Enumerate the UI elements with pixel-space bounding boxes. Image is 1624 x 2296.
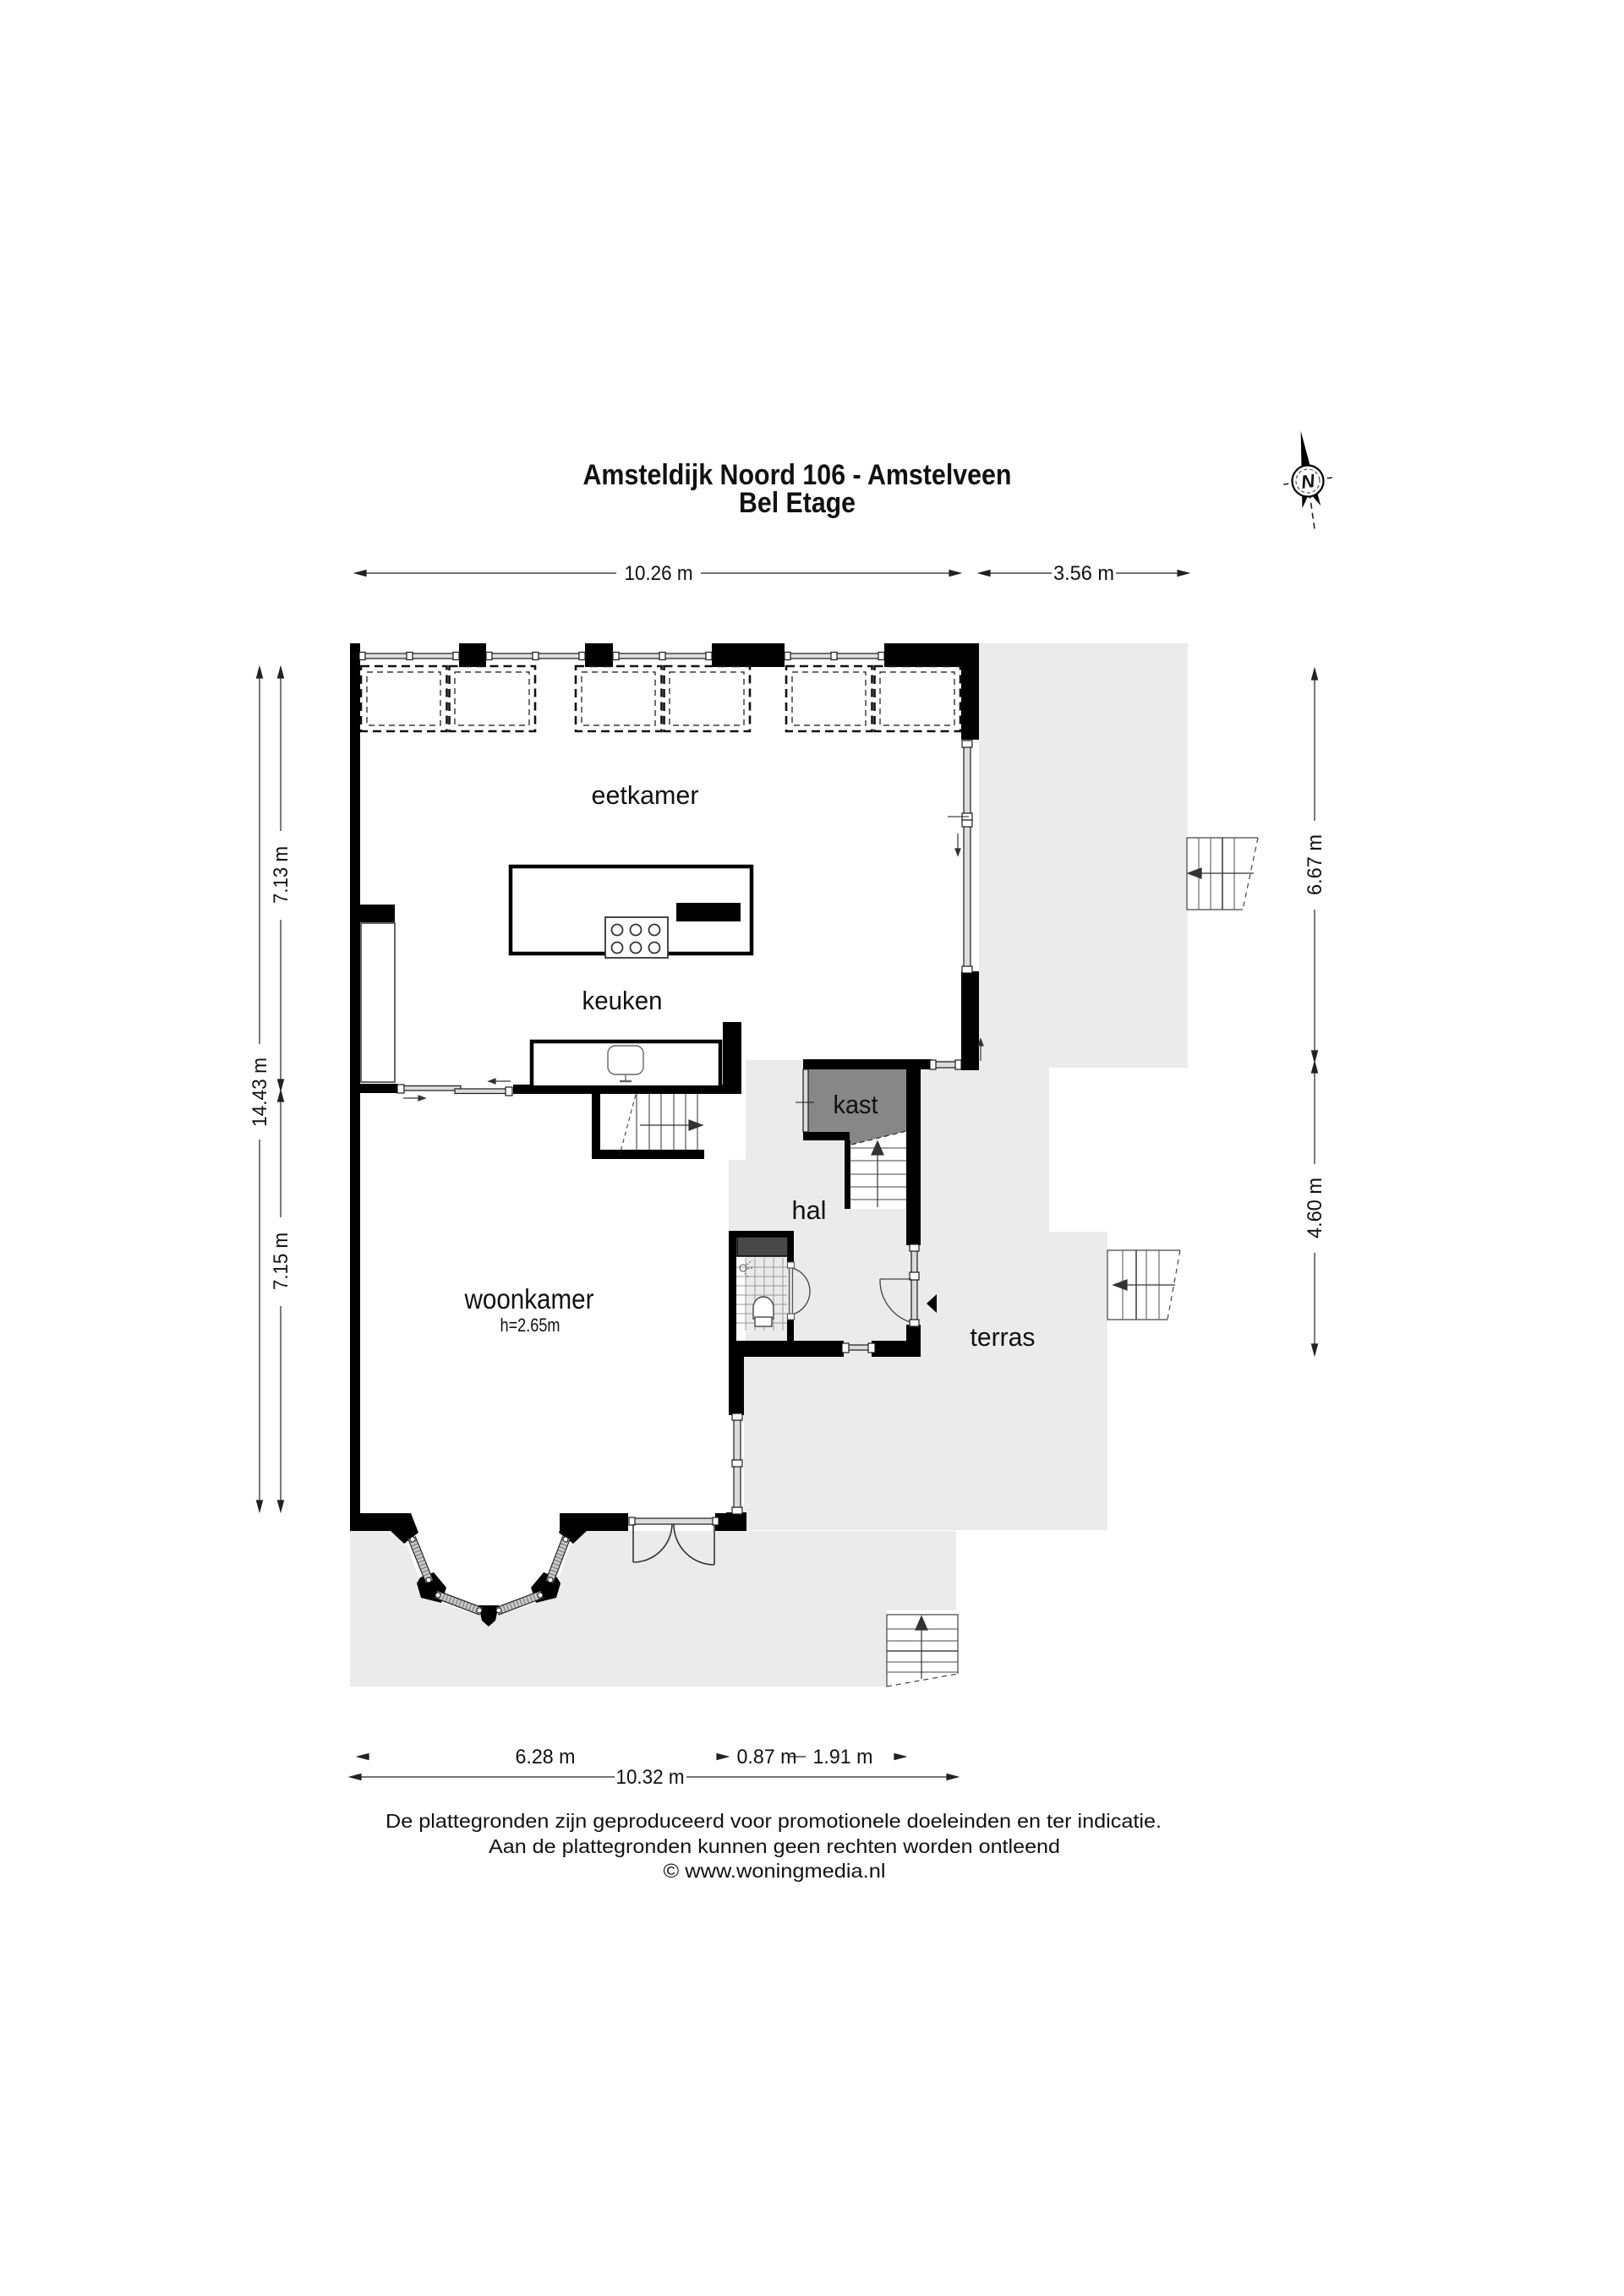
svg-text:De plattegronden zijn geproduc: De plattegronden zijn geproduceerd voor … xyxy=(385,1810,1162,1832)
svg-text:7.13 m: 7.13 m xyxy=(270,846,293,904)
svg-text:10.32 m: 10.32 m xyxy=(616,1766,685,1789)
svg-text:Aan de plattegronden kunnen ge: Aan de plattegronden kunnen geen rechten… xyxy=(489,1835,1060,1857)
svg-text:woonkamer: woonkamer xyxy=(464,1283,594,1315)
svg-text:h=2.65m: h=2.65m xyxy=(500,1315,560,1336)
svg-text:6.28 m: 6.28 m xyxy=(516,1746,576,1768)
svg-text:eetkamer: eetkamer xyxy=(592,780,699,810)
svg-text:hal: hal xyxy=(792,1195,827,1225)
svg-text:3.56 m: 3.56 m xyxy=(1053,562,1114,585)
svg-text:© www.woningmedia.nl: © www.woningmedia.nl xyxy=(664,1860,886,1882)
svg-text:10.26 m: 10.26 m xyxy=(625,562,693,585)
svg-text:6.67 m: 6.67 m xyxy=(1304,834,1326,895)
svg-text:kast: kast xyxy=(834,1090,878,1119)
svg-text:Bel Etage: Bel Etage xyxy=(739,487,856,519)
svg-text:0.87 m: 0.87 m xyxy=(737,1746,797,1768)
svg-text:terras: terras xyxy=(971,1322,1036,1352)
svg-text:keuken: keuken xyxy=(582,986,663,1015)
svg-text:7.15 m: 7.15 m xyxy=(270,1233,293,1290)
svg-text:4.60 m: 4.60 m xyxy=(1304,1178,1326,1238)
svg-text:14.43 m: 14.43 m xyxy=(249,1058,271,1127)
svg-text:1.91 m: 1.91 m xyxy=(813,1746,873,1768)
